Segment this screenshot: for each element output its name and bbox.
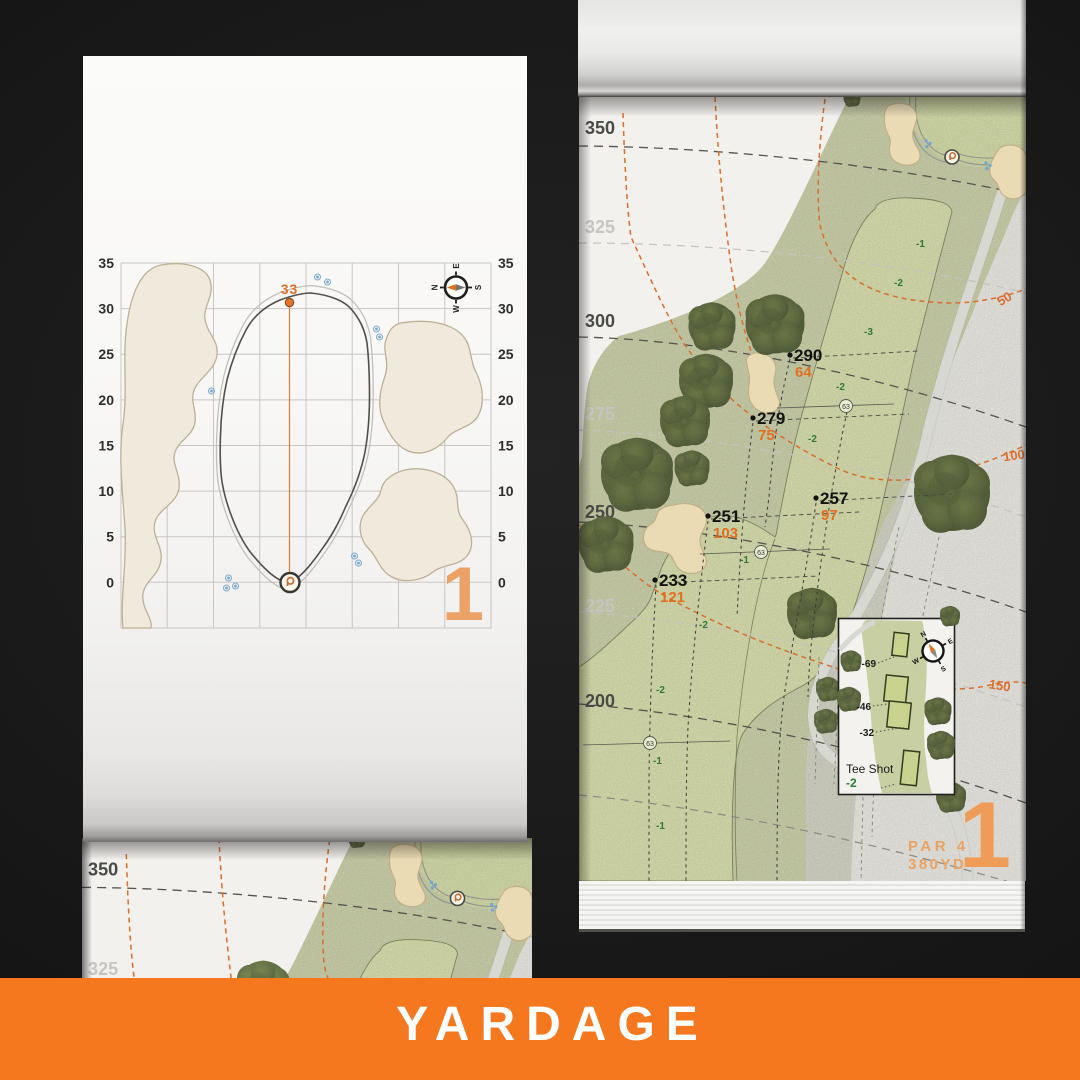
svg-text:5: 5 (498, 529, 506, 545)
svg-text:0: 0 (498, 574, 506, 590)
svg-text:10: 10 (498, 483, 514, 499)
svg-text:W: W (452, 305, 461, 313)
svg-text:25: 25 (98, 346, 114, 362)
svg-text:N: N (431, 284, 440, 290)
svg-text:1: 1 (442, 552, 484, 637)
svg-text:35: 35 (498, 255, 514, 271)
svg-text:25: 25 (498, 346, 514, 362)
svg-text:30: 30 (98, 301, 114, 317)
svg-text:15: 15 (498, 438, 514, 454)
svg-text:S: S (474, 284, 483, 290)
svg-text:E: E (452, 263, 461, 269)
svg-text:15: 15 (98, 438, 114, 454)
svg-text:33: 33 (281, 281, 299, 297)
svg-text:10: 10 (98, 483, 114, 499)
svg-text:35: 35 (98, 255, 114, 271)
svg-text:20: 20 (98, 392, 114, 408)
svg-text:5: 5 (106, 529, 114, 545)
svg-text:0: 0 (106, 574, 114, 590)
svg-text:20: 20 (498, 392, 514, 408)
svg-text:30: 30 (498, 301, 514, 317)
